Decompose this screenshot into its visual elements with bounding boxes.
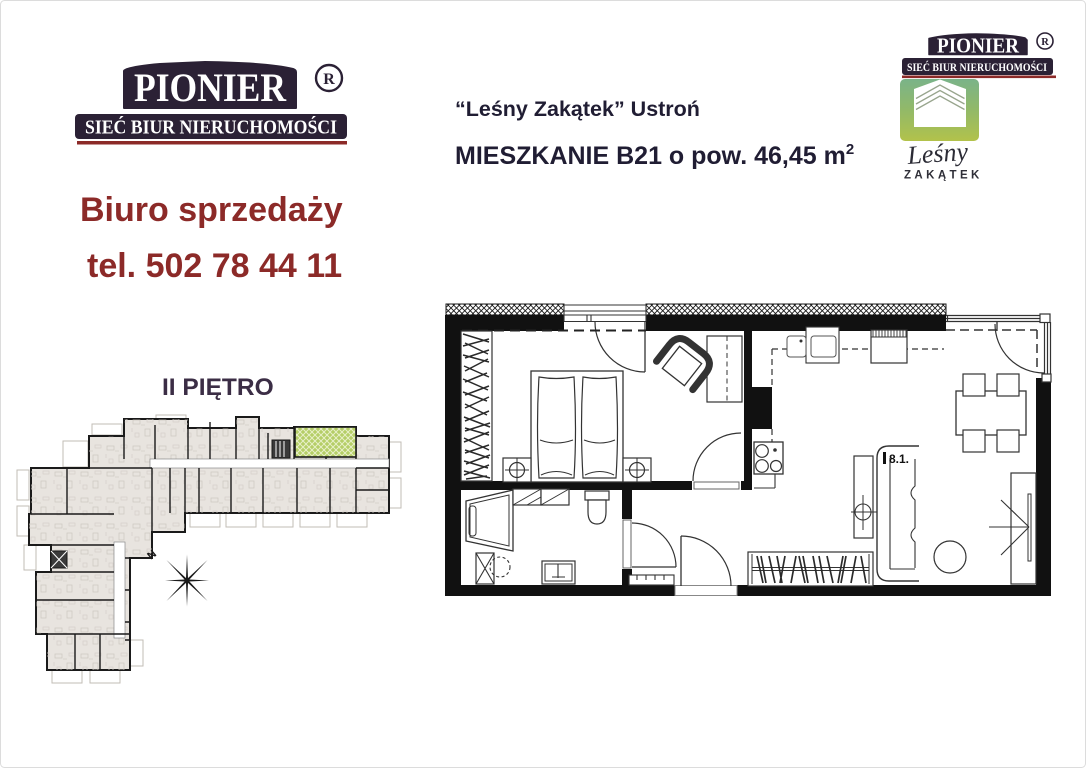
svg-text:tel. 502 78 44 11: tel. 502 78 44 11 [87,247,342,285]
svg-text:PIONIER: PIONIER [937,34,1020,58]
svg-text:SIEĆ BIUR NIERUCHOMOŚCI: SIEĆ BIUR NIERUCHOMOŚCI [907,60,1047,74]
svg-text:8.1.: 8.1. [889,452,909,466]
svg-text:R: R [1041,37,1049,48]
svg-text:II PIĘTRO: II PIĘTRO [162,374,274,401]
svg-text:SIEĆ BIUR NIERUCHOMOŚCI: SIEĆ BIUR NIERUCHOMOŚCI [85,117,337,139]
svg-text:“Leśny Zakątek” Ustroń: “Leśny Zakątek” Ustroń [455,97,700,121]
svg-text:Biuro sprzedaży: Biuro sprzedaży [80,191,343,229]
svg-text:Leśny: Leśny [905,137,969,170]
svg-text:ZAKĄTEK: ZAKĄTEK [904,170,983,182]
svg-text:PIONIER: PIONIER [134,65,287,110]
svg-text:MIESZKANIE B21 o pow. 46,45 m2: MIESZKANIE B21 o pow. 46,45 m2 [455,141,854,170]
svg-text:R: R [323,71,335,88]
